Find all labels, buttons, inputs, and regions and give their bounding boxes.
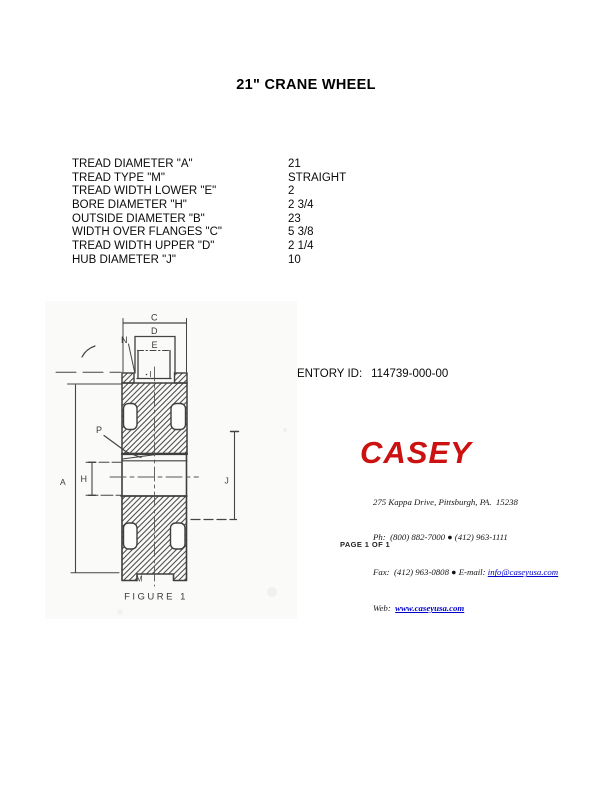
spec-row: OUTSIDE DIAMETER "B"23 [72,213,346,227]
dim-label-i: I [150,370,152,379]
figure-caption: FIGURE 1 [124,592,188,603]
spec-row: TREAD WIDTH LOWER "E"2 [72,185,346,199]
inventory-value: 114739-000-00 [371,368,448,380]
company-address: 275 Kappa Drive, Pittsburgh, PA. 15238 [373,497,558,509]
spec-value: 21 [288,158,301,172]
spec-list: TREAD DIAMETER "A"21 TREAD TYPE "M"STRAI… [72,158,346,268]
spec-row: TREAD WIDTH UPPER "D"2 1/4 [72,240,346,254]
spec-label: TREAD WIDTH UPPER "D" [72,240,288,254]
dim-label-m: M [136,575,143,584]
email-link[interactable]: info@caseyusa.com [488,567,558,577]
spec-label: TREAD WIDTH LOWER "E" [72,185,288,199]
spec-value: 2 [288,185,294,199]
spec-value: 23 [288,213,301,227]
company-contact-block: 275 Kappa Drive, Pittsburgh, PA. 15238 P… [373,473,558,638]
company-phone: Ph: (800) 882-7000 ● (412) 963-1111 [373,532,558,544]
spec-value: 10 [288,254,301,268]
spec-label: TREAD DIAMETER "A" [72,158,288,172]
document-page: 21" CRANE WHEEL TREAD DIAMETER "A"21 TRE… [0,0,612,792]
spec-label: HUB DIAMETER "J" [72,254,288,268]
company-web: Web: www.caseyusa.com [373,603,558,615]
spec-label: TREAD TYPE "M" [72,172,288,186]
spec-row: TREAD DIAMETER "A"21 [72,158,346,172]
web-label: Web: [373,603,395,613]
wheel-cross-section-figure: C D E N I P A H J M FIGURE 1 [40,300,310,622]
page-title: 21" CRANE WHEEL [0,77,612,93]
spec-row: HUB DIAMETER "J"10 [72,254,346,268]
dim-label-p: P [96,425,102,435]
spec-label: OUTSIDE DIAMETER "B" [72,213,288,227]
spec-label: BORE DIAMETER "H" [72,199,288,213]
dim-label-j: J [225,476,229,486]
crane-wheel-drawing: C D E N I P A H J M FIGURE 1 [40,300,310,622]
spec-row: BORE DIAMETER "H"2 3/4 [72,199,346,213]
dim-label-e: E [152,340,158,350]
dim-label-d: D [151,326,158,336]
fax-email-label: Fax: (412) 963-0808 ● E-mail: [373,567,488,577]
dim-label-n: N [121,335,128,345]
dim-label-a: A [60,477,66,487]
spec-value: 5 3/8 [288,226,314,240]
spec-row: WIDTH OVER FLANGES "C"5 3/8 [72,226,346,240]
spec-value: 2 3/4 [288,199,314,213]
company-logo: CASEY [360,437,472,468]
spec-value: STRAIGHT [288,172,346,186]
spec-value: 2 1/4 [288,240,314,254]
dim-label-c: C [151,313,158,323]
website-link[interactable]: www.caseyusa.com [395,603,464,613]
dim-label-h: H [81,474,88,484]
company-fax-email: Fax: (412) 963-0808 ● E-mail: info@casey… [373,567,558,579]
spec-label: WIDTH OVER FLANGES "C" [72,226,288,240]
page-number: PAGE 1 OF 1 [340,540,390,549]
spec-row: TREAD TYPE "M"STRAIGHT [72,172,346,186]
